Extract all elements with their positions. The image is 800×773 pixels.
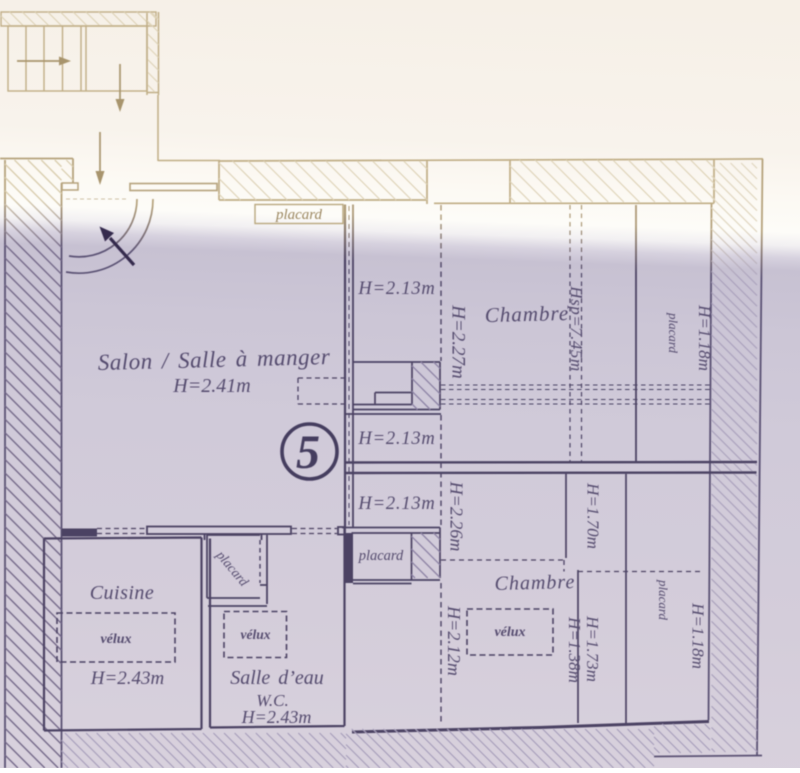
svg-text:placard: placard [656, 579, 671, 620]
svg-text:placard: placard [358, 548, 404, 564]
svg-text:placard: placard [275, 207, 323, 223]
svg-text:Salle d’eau: Salle d’eau [230, 667, 324, 689]
svg-text:H=1.18m: H=1.18m [689, 602, 708, 669]
svg-text:5: 5 [296, 426, 320, 479]
svg-text:vélux: vélux [494, 625, 525, 640]
svg-text:H=1.73m: H=1.73m [583, 615, 602, 682]
svg-text:H=1.38m: H=1.38m [565, 616, 584, 683]
svg-text:H=2.41m: H=2.41m [172, 375, 250, 397]
svg-text:Hsp=7.45m: Hsp=7.45m [567, 285, 586, 371]
svg-text:H=2.12m: H=2.12m [444, 605, 464, 676]
svg-text:H=2.26m: H=2.26m [447, 481, 467, 552]
svg-text:H=2.13m: H=2.13m [357, 429, 435, 449]
svg-text:vélux: vélux [100, 632, 131, 647]
svg-text:placard: placard [666, 312, 681, 353]
svg-text:vélux: vélux [241, 627, 271, 642]
svg-text:H=2.13m: H=2.13m [357, 279, 435, 299]
svg-text:H=1.70m: H=1.70m [584, 482, 603, 549]
svg-text:H=2.13m: H=2.13m [357, 494, 435, 514]
svg-text:H=1.18m: H=1.18m [695, 304, 714, 371]
svg-text:H=2.43m: H=2.43m [90, 668, 165, 689]
svg-text:H=2.27m: H=2.27m [448, 304, 469, 379]
svg-text:H=2.43m: H=2.43m [241, 707, 312, 727]
svg-text:Chambre: Chambre [484, 301, 569, 327]
svg-text:Cuisine: Cuisine [90, 582, 155, 604]
svg-text:Chambre: Chambre [494, 571, 575, 595]
